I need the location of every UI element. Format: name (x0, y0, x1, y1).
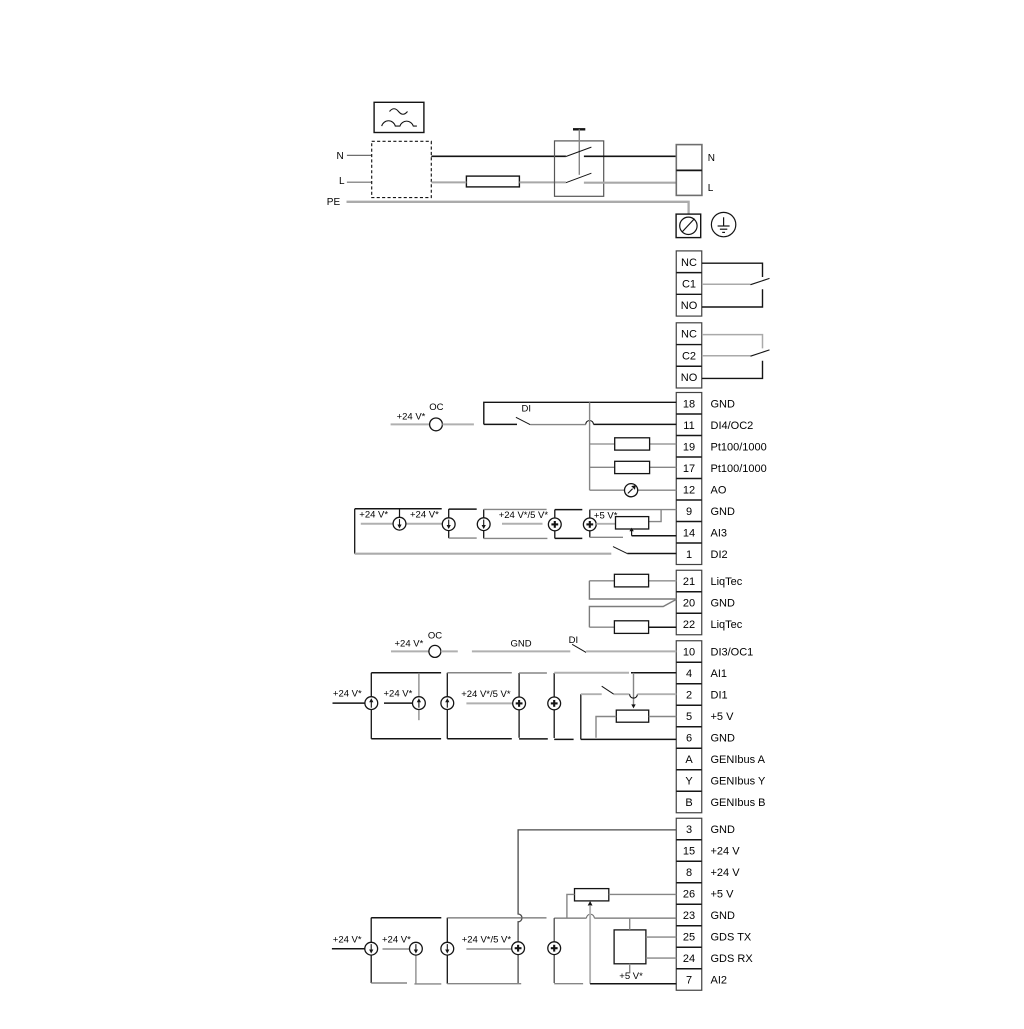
svg-text:7: 7 (686, 975, 692, 987)
svg-text:GND: GND (711, 398, 736, 410)
svg-text:GND: GND (711, 506, 736, 518)
svg-text:GENIbus Y: GENIbus Y (711, 776, 766, 788)
svg-text:N: N (337, 151, 344, 162)
svg-text:+24 V*/5 V*: +24 V*/5 V* (462, 934, 512, 945)
svg-text:Pt100/1000: Pt100/1000 (711, 463, 767, 475)
svg-text:L: L (708, 183, 714, 194)
svg-text:DI3/OC1: DI3/OC1 (711, 647, 754, 659)
svg-text:GND: GND (711, 824, 736, 836)
svg-text:+5 V: +5 V (711, 889, 735, 901)
svg-text:+24 V*/5 V*: +24 V*/5 V* (499, 510, 549, 521)
svg-text:20: 20 (683, 598, 695, 610)
svg-text:NC: NC (681, 257, 697, 269)
svg-text:B: B (685, 797, 692, 809)
svg-text:Y: Y (685, 776, 693, 788)
svg-text:+24 V*: +24 V* (410, 510, 439, 521)
svg-text:NC: NC (681, 329, 697, 341)
svg-text:+24 V: +24 V (711, 867, 741, 879)
svg-text:23: 23 (683, 910, 695, 922)
svg-text:+24 V*: +24 V* (359, 510, 388, 521)
svg-text:9: 9 (686, 506, 692, 518)
svg-text:AI1: AI1 (711, 668, 728, 680)
svg-text:NO: NO (681, 300, 698, 312)
svg-text:GND: GND (711, 733, 736, 745)
svg-text:DI: DI (522, 404, 532, 415)
svg-text:+5 V: +5 V (711, 711, 735, 723)
svg-text:+24 V*: +24 V* (384, 689, 413, 700)
svg-text:GDS RX: GDS RX (711, 953, 754, 965)
svg-text:DI2: DI2 (711, 549, 728, 561)
svg-text:GENIbus A: GENIbus A (711, 754, 766, 766)
svg-text:+24 V: +24 V (711, 846, 741, 858)
svg-text:+5 V*: +5 V* (594, 511, 618, 522)
svg-text:+5 V*: +5 V* (619, 971, 643, 982)
svg-text:21: 21 (683, 576, 695, 588)
svg-text:25: 25 (683, 932, 695, 944)
svg-text:N: N (708, 153, 715, 164)
svg-text:2: 2 (686, 690, 692, 702)
svg-text:+24 V*: +24 V* (333, 689, 362, 700)
svg-text:4: 4 (686, 668, 692, 680)
svg-text:3: 3 (686, 824, 692, 836)
svg-text:11: 11 (683, 420, 694, 432)
svg-text:DI4/OC2: DI4/OC2 (711, 420, 754, 432)
svg-text:24: 24 (683, 953, 695, 965)
svg-text:GDS TX: GDS TX (711, 932, 752, 944)
svg-text:Pt100/1000: Pt100/1000 (711, 441, 767, 453)
svg-text:22: 22 (683, 619, 695, 631)
svg-text:+24 V*: +24 V* (397, 411, 426, 422)
svg-text:26: 26 (683, 889, 695, 901)
svg-text:+24 V*: +24 V* (382, 934, 411, 945)
svg-text:OC: OC (429, 402, 443, 413)
svg-text:PE: PE (327, 197, 341, 208)
svg-text:10: 10 (683, 647, 695, 659)
svg-text:LiqTec: LiqTec (711, 576, 743, 588)
svg-text:+24 V*: +24 V* (395, 638, 424, 649)
svg-text:GND: GND (711, 598, 736, 610)
svg-text:1: 1 (686, 549, 692, 561)
svg-text:GENIbus B: GENIbus B (711, 797, 766, 809)
svg-text:AI2: AI2 (711, 975, 728, 987)
svg-text:OC: OC (428, 631, 442, 642)
svg-text:C2: C2 (682, 350, 696, 362)
svg-text:GND: GND (711, 910, 736, 922)
svg-text:8: 8 (686, 867, 692, 879)
svg-text:17: 17 (683, 463, 695, 475)
svg-text:AO: AO (711, 484, 727, 496)
svg-text:DI1: DI1 (711, 690, 728, 702)
svg-text:15: 15 (683, 846, 695, 858)
svg-text:L: L (339, 176, 345, 187)
svg-text:A: A (685, 754, 693, 766)
svg-text:LiqTec: LiqTec (711, 619, 743, 631)
svg-text:NO: NO (681, 372, 698, 384)
svg-text:12: 12 (683, 484, 695, 496)
svg-text:C1: C1 (682, 278, 696, 290)
svg-text:5: 5 (686, 711, 692, 723)
svg-text:+24 V*/5 V*: +24 V*/5 V* (461, 689, 511, 700)
svg-text:19: 19 (683, 441, 695, 453)
svg-text:14: 14 (683, 527, 695, 539)
svg-text:GND: GND (511, 638, 532, 649)
svg-text:+24 V*: +24 V* (333, 934, 362, 945)
svg-text:6: 6 (686, 733, 692, 745)
svg-text:AI3: AI3 (711, 527, 728, 539)
svg-text:18: 18 (683, 398, 695, 410)
svg-text:DI: DI (569, 635, 579, 646)
